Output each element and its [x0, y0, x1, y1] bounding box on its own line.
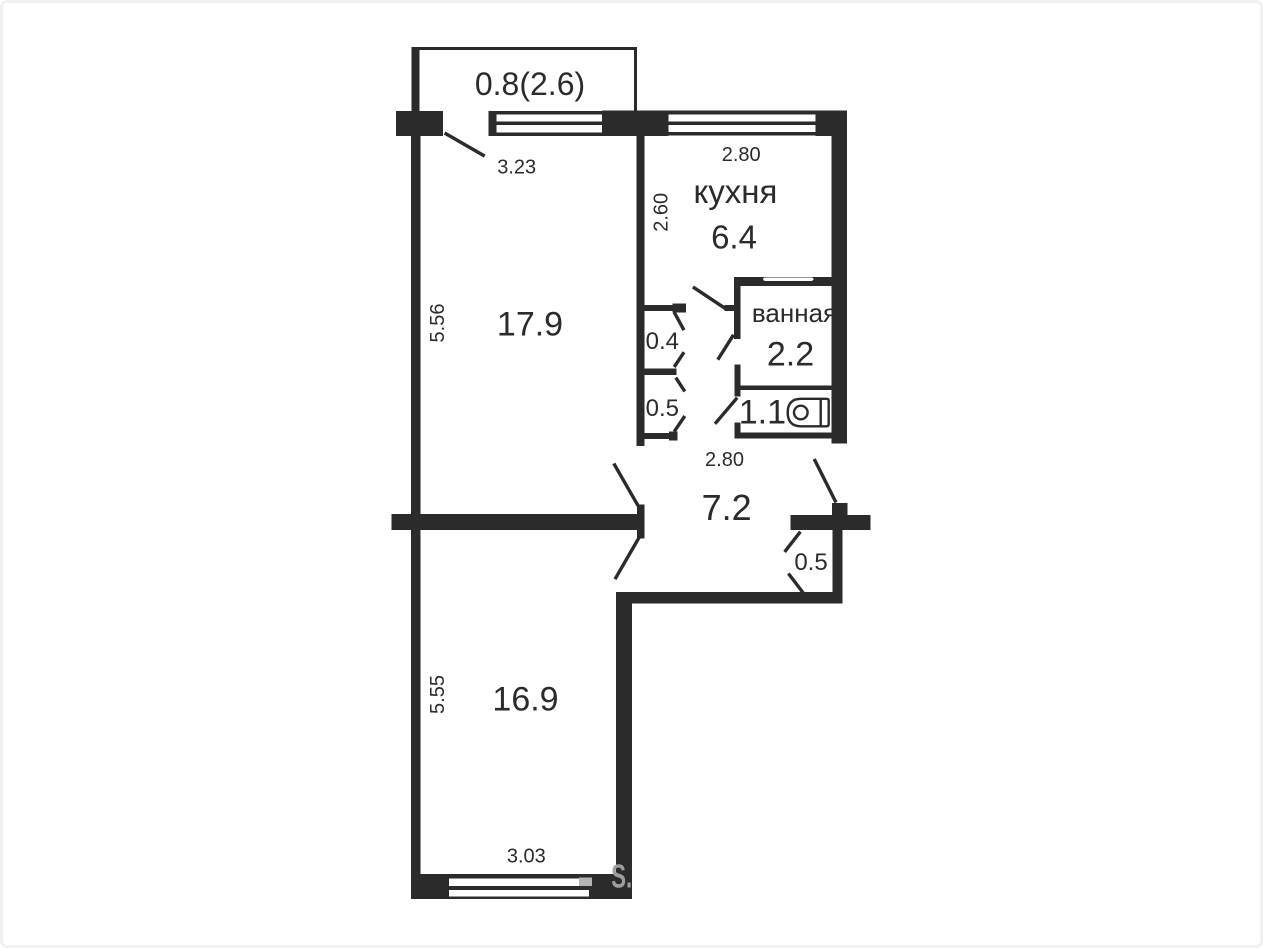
- svg-text:3.03: 3.03: [507, 846, 546, 868]
- svg-text:2.80: 2.80: [705, 449, 744, 471]
- svg-text:2.60: 2.60: [650, 193, 672, 232]
- svg-text:0.5: 0.5: [646, 395, 679, 422]
- svg-text:2.80: 2.80: [722, 144, 761, 166]
- svg-text:5.55: 5.55: [427, 675, 449, 714]
- svg-text:кухня: кухня: [693, 173, 777, 210]
- svg-text:0.5: 0.5: [794, 549, 827, 576]
- svg-text:6.4: 6.4: [711, 219, 757, 256]
- svg-text:3.23: 3.23: [497, 157, 536, 179]
- svg-text:17.9: 17.9: [497, 306, 563, 344]
- svg-text:7.2: 7.2: [702, 487, 752, 528]
- svg-text:0.8(2.6): 0.8(2.6): [475, 66, 585, 102]
- svg-text:ванная: ванная: [752, 298, 837, 328]
- svg-text:5.56: 5.56: [427, 304, 449, 343]
- svg-text:0.4: 0.4: [646, 328, 679, 355]
- svg-text:1.1: 1.1: [739, 394, 786, 432]
- svg-text:S.: S.: [611, 858, 632, 894]
- svg-text:16.9: 16.9: [492, 681, 558, 719]
- svg-text:2.2: 2.2: [767, 336, 814, 374]
